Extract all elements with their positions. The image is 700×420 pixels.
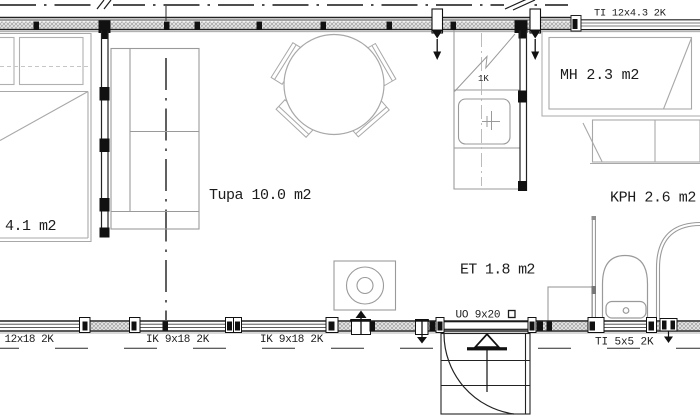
svg-text:IK 9x18 2K: IK 9x18 2K xyxy=(146,334,210,346)
svg-text:IK 9x18 2K: IK 9x18 2K xyxy=(260,334,324,346)
svg-text:KPH 2.6 m2: KPH 2.6 m2 xyxy=(610,190,696,207)
svg-text:UO 9x20: UO 9x20 xyxy=(456,310,501,322)
svg-text:MH 2.3 m2: MH 2.3 m2 xyxy=(560,67,639,84)
svg-text:TI 5x5 2K: TI 5x5 2K xyxy=(595,337,654,349)
svg-text:1K: 1K xyxy=(478,74,489,84)
svg-text:ET 1.8 m2: ET 1.8 m2 xyxy=(460,262,535,279)
svg-text:TI 12x4.3 2K: TI 12x4.3 2K xyxy=(594,8,667,20)
svg-text:4.1 m2: 4.1 m2 xyxy=(5,218,56,235)
svg-text:12x18 2K: 12x18 2K xyxy=(5,334,55,346)
svg-text:Tupa 10.0 m2: Tupa 10.0 m2 xyxy=(209,187,311,204)
